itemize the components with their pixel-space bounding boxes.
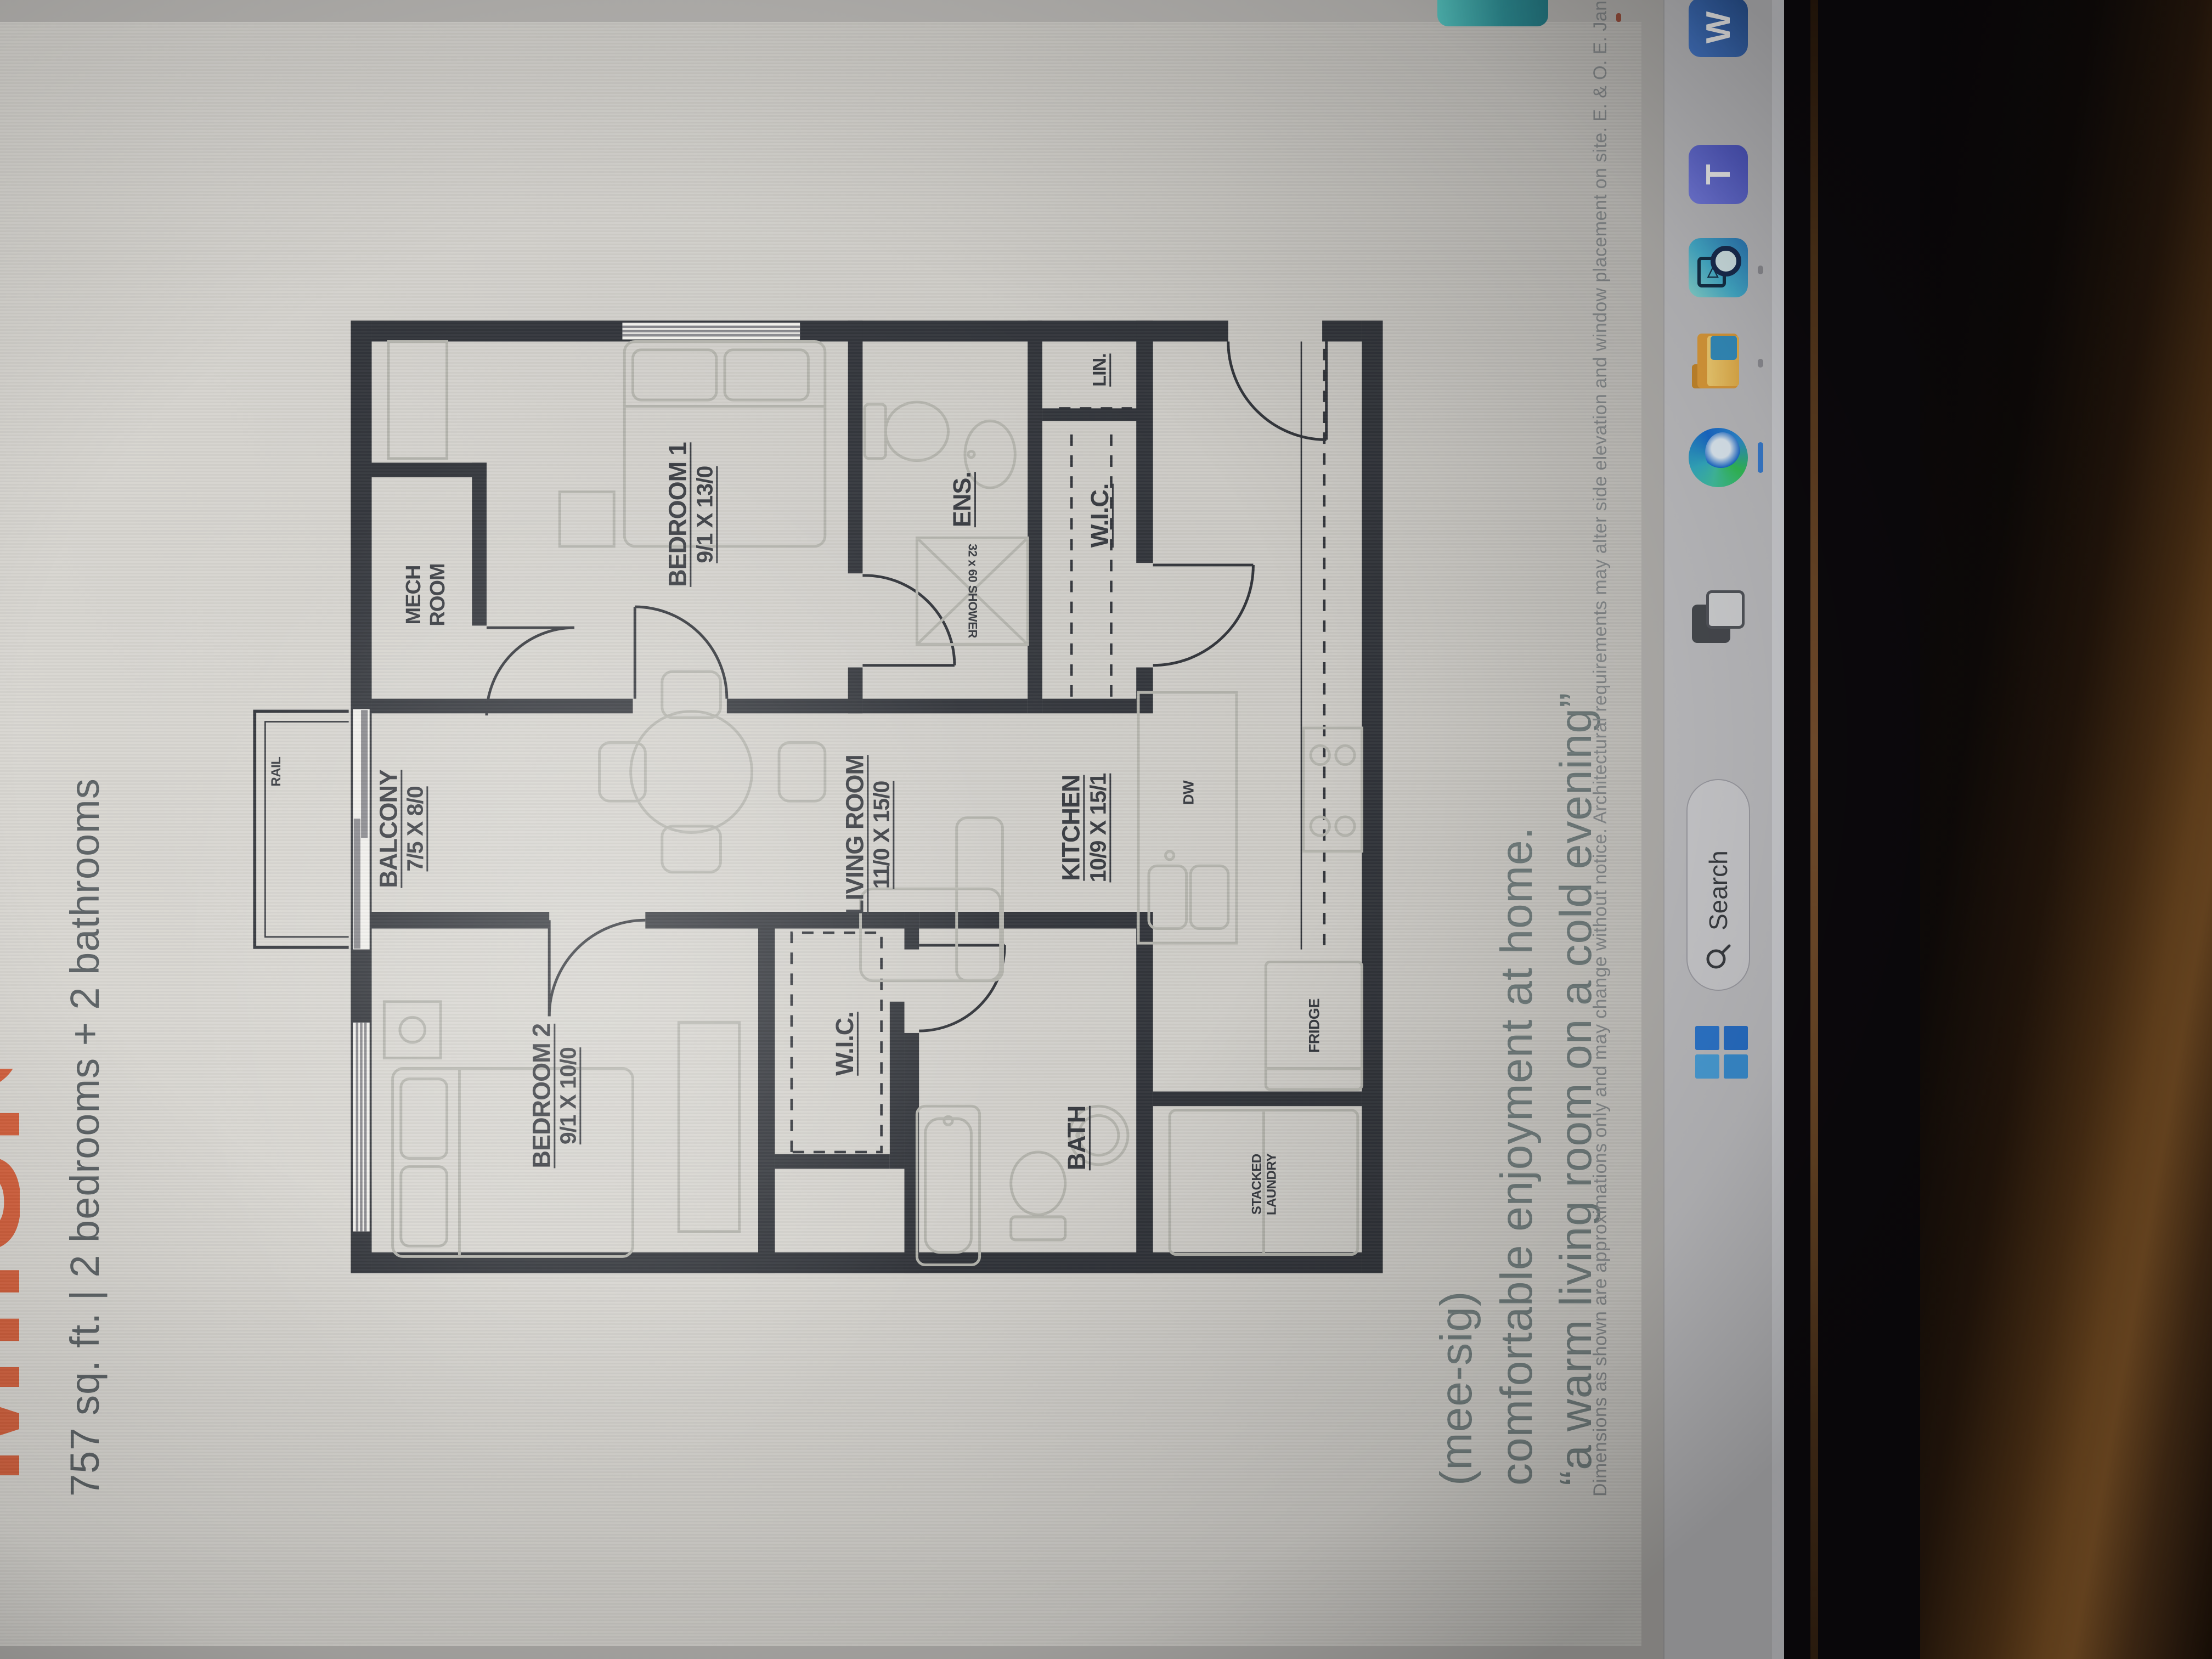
- edge-swirl: [1689, 428, 1748, 487]
- laptop-bezel: [1784, 0, 1931, 1659]
- word-icon[interactable]: W: [1689, 0, 1748, 57]
- start-logo-pane: [1724, 1026, 1748, 1050]
- teams-icon[interactable]: T: [1689, 145, 1748, 204]
- fixture-label-shower: 32 x 60 SHOWER: [966, 544, 979, 638]
- disclaimer-text: Dimensions as shown are approximations o…: [1590, 0, 1611, 1497]
- screen-bottom-edge: [1772, 0, 1784, 1659]
- media-app-icon[interactable]: ▷: [1689, 238, 1748, 297]
- fixture-label-dw: DW: [1181, 781, 1198, 805]
- start-logo-pane: [1724, 1054, 1748, 1079]
- running-indicator-explorer: [1758, 359, 1763, 368]
- plan-title-word: MIISIG: [0, 1069, 20, 1486]
- file-explorer-icon[interactable]: [1689, 331, 1748, 391]
- page-edge-mark: [1616, 13, 1621, 22]
- room-label-balcony: BALCONY7/5 X 8/0: [364, 770, 428, 888]
- folder-pocket: [1711, 336, 1737, 360]
- task-view-front-square: [1706, 590, 1745, 629]
- room-label-living-room: LIVING ROOM11/0 X 15/0: [831, 755, 895, 915]
- fixture-label-rail: RAIL: [269, 757, 284, 787]
- tagline-line1: comfortable enjoyment at home.: [1491, 827, 1543, 1486]
- plan-subtitle: 757 sq. ft. | 2 bedrooms + 2 bathrooms: [61, 778, 108, 1497]
- sidebar-widget-peek[interactable]: [1437, 0, 1548, 26]
- taskbar-search[interactable]: Search: [1686, 779, 1750, 991]
- room-label-ensuite: ENS.: [938, 472, 976, 527]
- start-button[interactable]: [1695, 1026, 1748, 1079]
- room-label-wic-ensuite: W.I.C.: [1075, 484, 1114, 548]
- lens-glyph: [1711, 246, 1741, 276]
- edge-icon[interactable]: [1689, 428, 1748, 487]
- out-of-focus-laptop-base: [1920, 0, 2212, 1659]
- bezel-reflection-stripe: [1810, 0, 1818, 1659]
- photo-of-laptop-screen: MIISIG 757 sq. ft. | 2 bedrooms + 2 bath…: [0, 0, 2212, 1659]
- fixture-label-fridge: FRIDGE: [1306, 998, 1323, 1053]
- plan-title-cropped: MIISIG: [0, 1069, 20, 1486]
- room-label-bath: BATH: [1053, 1106, 1091, 1171]
- running-indicator-media: [1758, 266, 1763, 274]
- start-logo-pane: [1695, 1054, 1719, 1079]
- room-label-bedroom1: BEDROOM 19/1 X 13/0: [653, 442, 718, 587]
- fixture-label-stacked-laundry: STACKED LAUNDRY: [1249, 1153, 1279, 1215]
- search-label: Search: [1703, 850, 1733, 930]
- room-label-wic-bedroom2: W.I.C.: [821, 1012, 859, 1076]
- room-label-linen: LIN.: [1079, 353, 1110, 386]
- room-label-bedroom2: BEDROOM 29/1 X 10/0: [517, 1024, 582, 1169]
- room-label-mech-room: MECH ROOM: [392, 563, 450, 626]
- floorplan-document-page: MIISIG 757 sq. ft. | 2 bedrooms + 2 bath…: [0, 22, 1641, 1646]
- running-indicator-edge: [1758, 442, 1763, 473]
- laptop-screen: MIISIG 757 sq. ft. | 2 bedrooms + 2 bath…: [0, 0, 1931, 1659]
- search-icon: [1704, 943, 1733, 971]
- floor-plan: BALCONY7/5 X 8/0 RAIL BEDROOM 29/1 X 10/…: [236, 291, 1432, 1295]
- room-label-kitchen: KITCHEN10/9 X 15/1: [1047, 774, 1111, 883]
- start-logo-pane: [1695, 1026, 1719, 1050]
- task-view-icon[interactable]: [1689, 587, 1748, 646]
- pronunciation-text: (mee-sig): [1431, 1291, 1482, 1486]
